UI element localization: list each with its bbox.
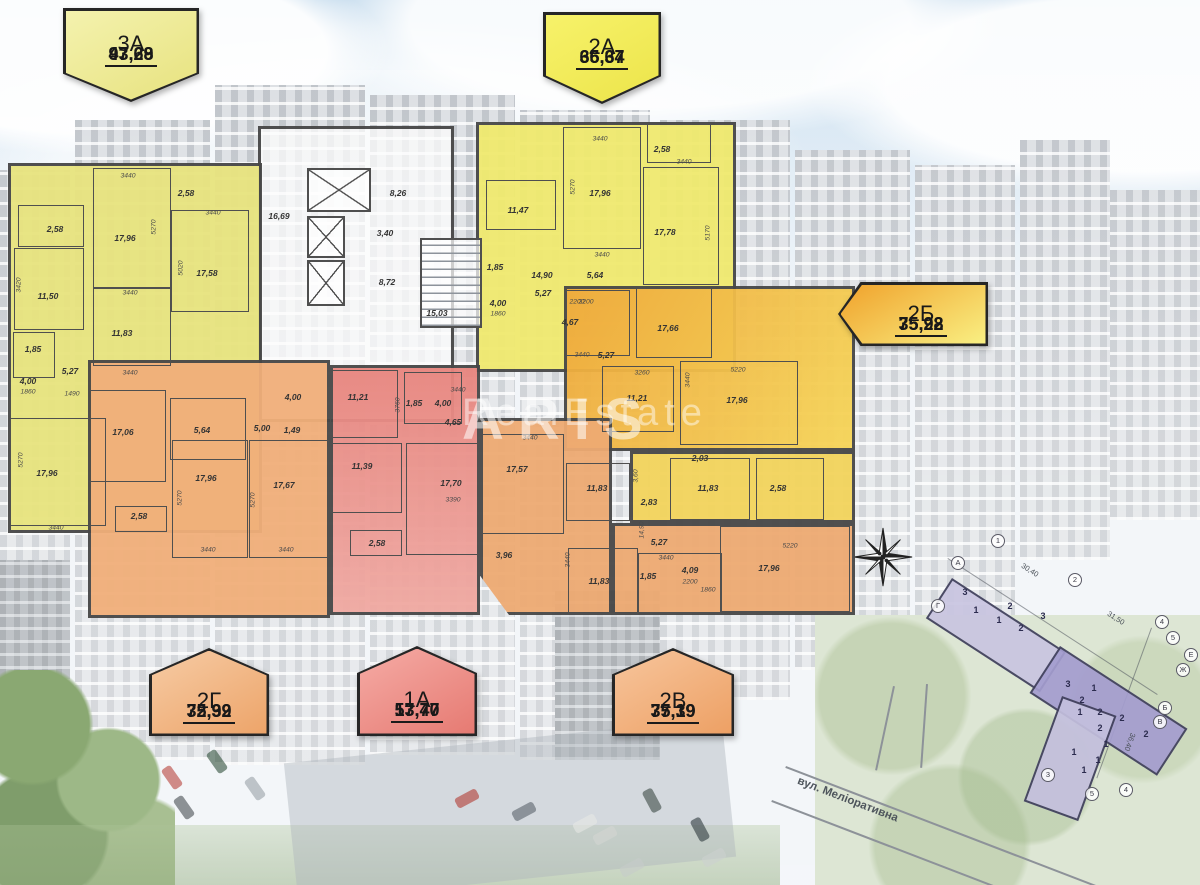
room-area-label: 4,00 <box>20 376 37 386</box>
room-area-label: 17,57 <box>506 464 527 474</box>
badge-text: 3А 47,68 93,29 <box>63 8 199 102</box>
watermark-line2: RealEstate <box>462 390 708 436</box>
room-area-label: 11,83 <box>112 328 133 338</box>
room-outline <box>93 168 171 288</box>
siteplan-unit-number: 1 <box>1091 683 1096 693</box>
room-area-label: 3440 <box>278 547 293 554</box>
room-area-label: 2200 <box>569 299 584 306</box>
siteplan-axis-bubble: 2 <box>1068 573 1082 587</box>
room-area-label: 17,96 <box>114 233 135 243</box>
room-area-label: 11,83 <box>589 576 610 586</box>
room-area-label: 3440 <box>676 159 691 166</box>
siteplan-axis-bubble: Б <box>1158 701 1172 715</box>
room-area-label: 5,27 <box>651 537 668 547</box>
siteplan-axis-bubble: В <box>1153 715 1167 729</box>
siteplan-unit-number: 2 <box>1018 623 1023 633</box>
siteplan-unit-number: 1 <box>1095 755 1100 765</box>
room-area-label: 5020 <box>178 260 185 275</box>
siteplan-unit-number: 2 <box>1007 601 1012 611</box>
room-area-label: 11,50 <box>38 291 59 301</box>
room-area-label: 16,69 <box>268 211 289 221</box>
room-area-label: 1860 <box>490 311 505 318</box>
siteplan-axis-bubble: 5 <box>1085 787 1099 801</box>
room-area-label: 4,00 <box>285 392 302 402</box>
room-area-label: 5270 <box>570 179 577 194</box>
room-area-label: 5220 <box>730 367 745 374</box>
room-area-label: 4,67 <box>562 317 579 327</box>
siteplan-unit-number: 1 <box>1103 739 1108 749</box>
room-area-label: 17,70 <box>440 478 461 488</box>
badge-total-area: 72,39 <box>186 701 231 722</box>
room-outline <box>93 288 171 366</box>
room-area-label: 2,58 <box>369 538 386 548</box>
room-area-label: 4,00 <box>435 398 452 408</box>
siteplan-unit-number: 1 <box>996 615 1001 625</box>
room-area-label: 3440 <box>122 370 137 377</box>
room-area-label: 2,58 <box>131 511 148 521</box>
elevator-shaft <box>307 168 371 212</box>
room-area-label: 5,27 <box>535 288 552 298</box>
room-area-label: 1,85 <box>25 344 42 354</box>
room-area-label: 3390 <box>445 497 460 504</box>
room-area-label: 3440 <box>574 352 589 359</box>
room-area-label: 17,96 <box>36 468 57 478</box>
room-outline <box>638 553 722 613</box>
room-area-label: 11,47 <box>508 205 529 215</box>
room-area-label: 5,64 <box>587 270 604 280</box>
room-area-label: 4,00 <box>490 298 507 308</box>
apartment-badge: 2В 35,39 77,19 <box>612 648 734 736</box>
room-area-label: 5270 <box>151 219 158 234</box>
room-area-label: 5220 <box>782 543 797 550</box>
room-area-label: 5170 <box>705 225 712 240</box>
siteplan-unit-number: 2 <box>1143 729 1148 739</box>
siteplan-unit-number: 2 <box>1097 707 1102 717</box>
siteplan-unit-number: 3 <box>962 587 967 597</box>
apartment-badge: 3А 47,68 93,29 <box>63 8 199 102</box>
badge-text: 2А 35,37 66,64 <box>543 12 661 104</box>
siteplan-axis-bubble: 1 <box>991 534 1005 548</box>
room-area-label: 8,26 <box>390 188 407 198</box>
room-outline <box>406 443 480 555</box>
badge-text: 2Г 35,92 72,39 <box>149 648 269 736</box>
room-outline <box>330 443 402 513</box>
room-area-label: 17,96 <box>758 563 779 573</box>
room-area-label: 1,85 <box>406 398 423 408</box>
room-outline <box>330 370 398 438</box>
badge-text: 2Б 35,92 75,28 <box>838 282 988 346</box>
compass-rose-icon <box>852 526 914 588</box>
room-area-label: 3440 <box>565 552 572 567</box>
siteplan-unit-number: 3 <box>1065 679 1070 689</box>
room-area-label: 5270 <box>18 452 25 467</box>
room-area-label: 5,00 <box>254 423 271 433</box>
room-area-label: 4,09 <box>682 565 699 575</box>
room-area-label: 17,67 <box>273 480 294 490</box>
room-area-label: 11,39 <box>352 461 373 471</box>
room-area-label: 11,21 <box>348 392 369 402</box>
room-area-label: 3440 <box>205 210 220 217</box>
room-area-label: 2,58 <box>770 483 787 493</box>
room-area-label: 17,96 <box>589 188 610 198</box>
room-area-label: 5270 <box>177 490 184 505</box>
apartment-badge: 2Г 35,92 72,39 <box>149 648 269 736</box>
siteplan-axis-bubble: Г <box>931 599 945 613</box>
room-area-label: 17,66 <box>657 323 678 333</box>
siteplan-axis-bubble: Ж <box>1176 663 1190 677</box>
room-area-label: 1,85 <box>487 262 504 272</box>
room-area-label: 11,83 <box>587 483 608 493</box>
room-area-label: 2,58 <box>47 224 64 234</box>
room-area-label: 17,96 <box>726 395 747 405</box>
room-area-label: 5270 <box>250 492 257 507</box>
room-area-label: 17,06 <box>112 427 133 437</box>
room-area-label: 2200 <box>682 579 697 586</box>
room-area-label: 3440 <box>592 136 607 143</box>
room-area-label: 3,60 <box>633 469 640 482</box>
room-outline <box>647 123 711 163</box>
badge-total-area: 66,64 <box>579 47 624 68</box>
room-area-label: 3440 <box>120 173 135 180</box>
badge-text: 2В 35,39 77,19 <box>612 648 734 736</box>
room-area-label: 2,83 <box>641 497 658 507</box>
room-area-label: 3440 <box>200 547 215 554</box>
floor-plan: 2,5817,9611,5017,5811,835,271,854,001860… <box>8 118 856 623</box>
room-area-label: 3440 <box>594 252 609 259</box>
siteplan-unit-number: 2 <box>1079 695 1084 705</box>
room-area-label: 17,78 <box>654 227 675 237</box>
apartment-badge: 1А 17,70 53,47 <box>357 646 477 736</box>
badge-total-area: 53,47 <box>394 700 439 721</box>
room-outline <box>13 332 55 378</box>
room-area-label: 15,03 <box>426 308 447 318</box>
room-area-label: 17,96 <box>195 473 216 483</box>
siteplan-axis-bubble: 3 <box>1041 768 1055 782</box>
siteplan-unit-number: 1 <box>1077 707 1082 717</box>
room-area-label: 14,90 <box>531 270 552 280</box>
room-area-label: 2,58 <box>654 144 671 154</box>
room-area-label: 1,49 <box>284 425 301 435</box>
room-area-label: 5,64 <box>194 425 211 435</box>
room-area-label: 1490 <box>64 391 79 398</box>
apartment-badge: 2Б 35,92 75,28 <box>838 282 988 346</box>
room-area-label: 11,83 <box>698 483 719 493</box>
siteplan-axis-bubble: 4 <box>1119 783 1133 797</box>
badge-total-area: 93,29 <box>108 44 153 65</box>
room-area-label: 1860 <box>700 587 715 594</box>
room-area-label: 3440 <box>685 372 692 387</box>
room-area-label: 3440 <box>122 290 137 297</box>
room-area-label: 3420 <box>16 277 23 292</box>
room-area-label: 14,90 <box>639 521 646 538</box>
siteplan-unit-number: 3 <box>1040 611 1045 621</box>
room-area-label: 5,27 <box>62 366 79 376</box>
badge-total-area: 77,19 <box>650 701 695 722</box>
room-outline <box>720 526 850 612</box>
siteplan-unit-number: 1 <box>1071 747 1076 757</box>
room-area-label: 2,03 <box>692 453 709 463</box>
siteplan-axis-bubble: А <box>951 556 965 570</box>
room-area-label: 1,85 <box>640 571 657 581</box>
room-area-label: 3440 <box>48 525 63 532</box>
elevator-shaft <box>307 260 345 306</box>
room-area-label: 3440 <box>658 555 673 562</box>
badge-total-area: 75,28 <box>898 314 943 335</box>
siteplan-unit-number: 1 <box>973 605 978 615</box>
room-outline <box>756 458 824 520</box>
siteplan-axis-bubble: 4 <box>1155 615 1169 629</box>
siteplan-axis-bubble: Е <box>1184 648 1198 662</box>
room-outline <box>14 248 84 330</box>
siteplan-unit-number: 2 <box>1097 723 1102 733</box>
elevator-shaft <box>307 216 345 258</box>
badge-text: 1А 17,70 53,47 <box>357 646 477 736</box>
apartment-badge: 2А 35,37 66,64 <box>543 12 661 104</box>
room-area-label: 3,40 <box>377 228 394 238</box>
room-area-label: 8,72 <box>379 277 396 287</box>
siteplan-axis-bubble: 5 <box>1166 631 1180 645</box>
room-area-label: 5,27 <box>598 350 615 360</box>
siteplan-unit-number: 1 <box>1081 765 1086 775</box>
room-area-label: 17,58 <box>196 268 217 278</box>
screenshot-root: вул. Меліоративна 311232322122121111 124… <box>0 0 1200 885</box>
room-area-label: 4,65 <box>445 417 462 427</box>
siteplan-unit-number: 2 <box>1119 713 1124 723</box>
room-outline <box>249 440 329 558</box>
room-area-label: 3260 <box>634 370 649 377</box>
room-area-label: 3760 <box>395 397 402 412</box>
room-area-label: 1860 <box>20 389 35 396</box>
room-area-label: 3,96 <box>496 550 513 560</box>
room-area-label: 2,58 <box>178 188 195 198</box>
